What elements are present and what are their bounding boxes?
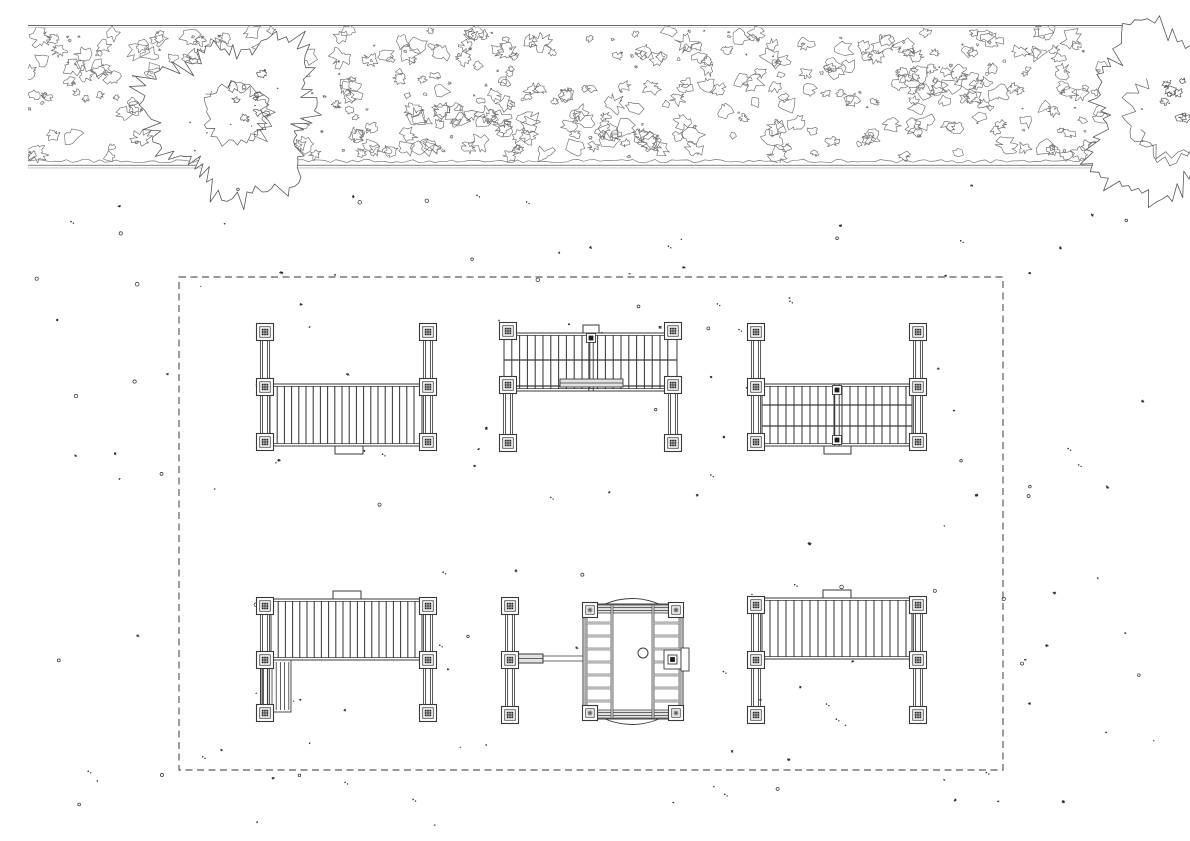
play-cabin-s xyxy=(502,598,690,725)
hedge-top-line xyxy=(28,26,1163,28)
tree-canopy-right xyxy=(1080,16,1190,208)
leg-rails xyxy=(503,390,677,450)
bench xyxy=(560,379,623,387)
pergola-frame-nw xyxy=(257,324,437,455)
step-tab xyxy=(583,325,599,333)
bridge-deck-n xyxy=(500,323,682,452)
step-tab xyxy=(824,446,851,454)
bench-arm xyxy=(512,654,583,663)
side-step-box xyxy=(664,648,689,671)
pergola-frame-ne xyxy=(748,324,927,455)
step-tab xyxy=(333,591,361,599)
deck-frame-sw xyxy=(257,591,437,722)
step-tab xyxy=(335,446,363,454)
table-circle xyxy=(638,648,648,658)
deck-frame-se xyxy=(748,590,927,724)
step-tab xyxy=(823,590,851,598)
site-plan-drawing xyxy=(0,0,1190,841)
plan-canvas xyxy=(0,0,1190,841)
ground-scatter-texture xyxy=(35,184,1155,825)
